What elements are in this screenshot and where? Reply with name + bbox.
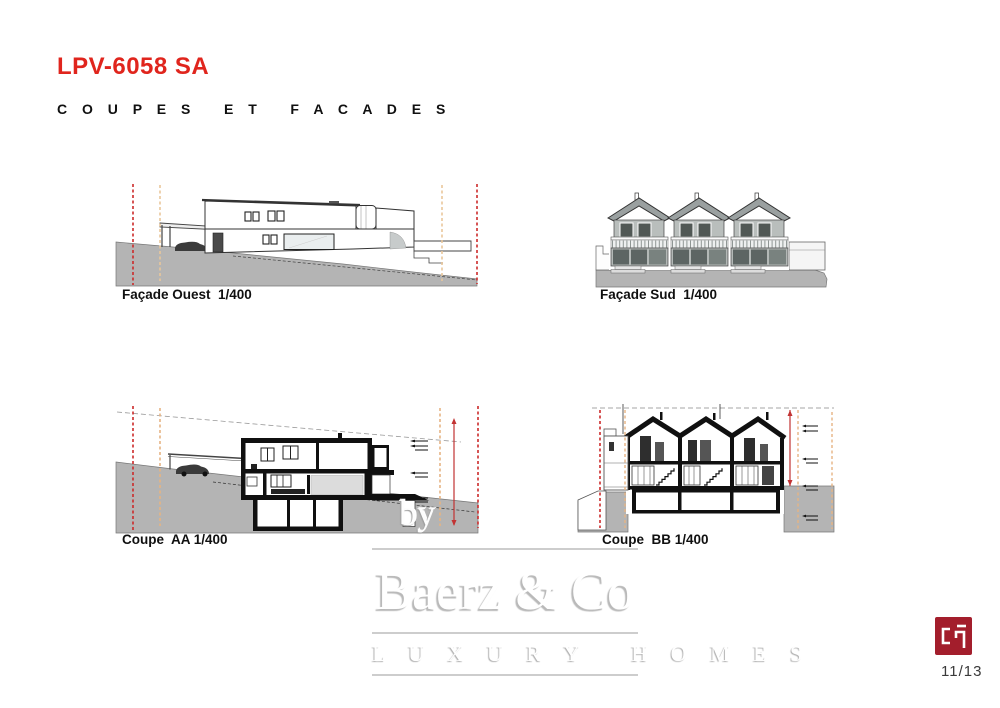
coupe-bb-caption: Coupe BB 1/400 xyxy=(602,532,709,547)
house-elevation xyxy=(202,200,471,263)
facade-sud-caption: Façade Sud 1/400 xyxy=(600,287,717,302)
watermark-brand-name: Baerz & Co xyxy=(372,551,638,631)
facade-ouest-drawing xyxy=(113,180,483,288)
cp-logo xyxy=(935,617,972,655)
datum-dashed-line xyxy=(117,412,461,442)
plan-sheet-page: LPV-6058 SA C O U P E S E T F A C A D E … xyxy=(0,0,1000,708)
page-subtitle: C O U P E S E T F A C A D E S xyxy=(57,101,451,117)
watermark-by: by xyxy=(399,492,435,534)
coupe-bb-drawing xyxy=(576,396,838,540)
page-title: LPV-6058 SA xyxy=(57,53,209,81)
facade-sud-drawing xyxy=(593,186,833,290)
facade-ouest-panel xyxy=(113,180,483,288)
watermark-rule-mid xyxy=(372,632,638,634)
coupe-bb-panel xyxy=(576,396,838,540)
watermark-rule-bottom xyxy=(372,674,638,676)
watermark-rule-top xyxy=(372,548,638,550)
facade-sud-panel xyxy=(593,186,833,290)
cp-monogram-icon xyxy=(935,617,972,655)
watermark-tagline: L U X U R Y H O M E S xyxy=(372,635,638,673)
facade-ouest-caption: Façade Ouest 1/400 xyxy=(122,287,252,302)
coupe-aa-caption: Coupe AA 1/400 xyxy=(122,532,228,547)
watermark-block: Baerz & Co L U X U R Y H O M E S xyxy=(372,548,638,676)
page-number: 11/13 xyxy=(941,663,982,680)
townhouse-units xyxy=(608,193,790,273)
carport-and-car xyxy=(168,454,245,477)
